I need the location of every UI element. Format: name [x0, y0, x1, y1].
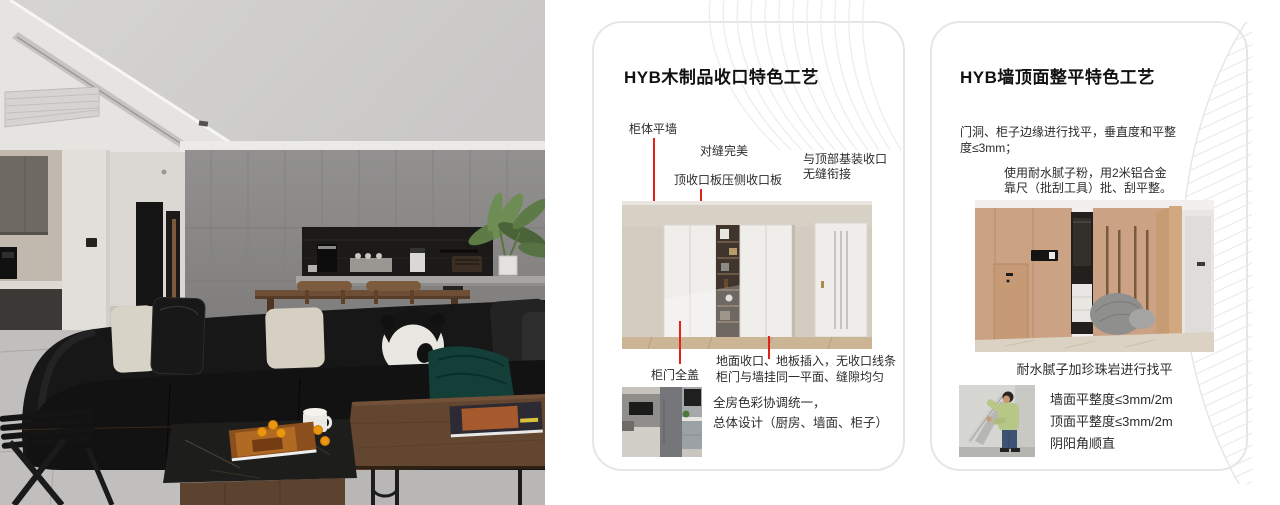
- card2-title: HYB墙顶面整平特色工艺: [960, 63, 1155, 88]
- craft-card-woodwork: HYB木制品收口特色工艺 柜体平墙 对缝完美 顶收口板压侧收口板 与顶部基装收口…: [592, 21, 905, 471]
- ceiling: [0, 0, 545, 172]
- light-switch: [86, 238, 97, 247]
- card2-specs: 墙面平整度≤3mm/2m 顶面平整度≤3mm/2m 阴阳角顺直: [1050, 389, 1173, 455]
- card1-note-line1: 地面收口、地板插入，无收口线条: [716, 354, 896, 370]
- card1-note-line2: 柜门与墙挂同一平面、缝隙均匀: [716, 370, 896, 386]
- card2-worker-photo: [959, 385, 1035, 462]
- card2-photo-caption: 耐水腻子加珍珠岩进行找平: [975, 359, 1214, 378]
- kitchen: [0, 150, 62, 341]
- card1-cabinet-render: [622, 201, 872, 354]
- page: HYB木制品收口特色工艺 柜体平墙 对缝完美 顶收口板压侧收口板 与顶部基装收口…: [0, 0, 1280, 505]
- spec-wall-flatness: 墙面平整度≤3mm/2m: [1050, 389, 1173, 411]
- living-room-illustration: [0, 0, 545, 505]
- label-ceiling-joint-line1: 与顶部基装收口: [803, 152, 887, 167]
- label-ceiling-joint: 与顶部基装收口 无缝衔接: [803, 152, 887, 182]
- coffee-machine: [0, 247, 17, 279]
- card1-summary-line2: 总体设计（厨房、墙面、柜子）: [713, 414, 888, 434]
- label-full-overlay-doors: 柜门全盖: [651, 366, 699, 383]
- card2-paragraph-2: 使用耐水腻子粉，用2米铝合金 靠尺（批刮工具）批、刮平整。: [1004, 166, 1172, 195]
- label-cabinet-flush-wall: 柜体平墙: [629, 120, 677, 137]
- card2-para2-line1: 使用耐水腻子粉，用2米铝合金: [1004, 166, 1172, 181]
- card1-summary: 全房色彩协调统一， 总体设计（厨房、墙面、柜子）: [713, 394, 888, 433]
- wood-door: [994, 264, 1028, 342]
- card1-notes: 地面收口、地板插入，无收口线条 柜门与墙挂同一平面、缝隙均匀: [716, 354, 896, 385]
- spec-ceiling-flatness: 顶面平整度≤3mm/2m: [1050, 411, 1173, 433]
- appliance-niche: [302, 227, 493, 278]
- open-door-right: [1156, 206, 1214, 342]
- leader-line-3: [679, 321, 681, 364]
- magazine-walnut-table: [449, 402, 542, 438]
- card2-para2-line2: 靠尺（批刮工具）批、刮平整。: [1004, 181, 1172, 196]
- label-perfect-seams: 对缝完美: [700, 142, 748, 159]
- card1-thumbnail-photo: [622, 387, 702, 462]
- craft-card-leveling: HYB墙顶面整平特色工艺 门洞、柜子边缘进行找平，垂直度和平整 度≤3mm； 使…: [930, 21, 1248, 471]
- label-ceiling-joint-line2: 无缝衔接: [803, 167, 887, 182]
- card2-para1-line1: 门洞、柜子边缘进行找平，垂直度和平整: [960, 125, 1236, 141]
- card1-title: HYB木制品收口特色工艺: [624, 63, 819, 88]
- card1-summary-line1: 全房色彩协调统一，: [713, 394, 888, 414]
- spec-corners-straight: 阴阳角顺直: [1050, 433, 1173, 455]
- cup-rack: [350, 258, 392, 272]
- label-top-closing-panel: 顶收口板压侧收口板: [674, 171, 782, 188]
- card2-closet-photo: [975, 200, 1214, 357]
- card2-paragraph-1: 门洞、柜子边缘进行找平，垂直度和平整 度≤3mm；: [960, 125, 1236, 156]
- interior-door: [815, 223, 867, 337]
- dark-doorway: [136, 202, 163, 308]
- card2-para1-line2: 度≤3mm；: [960, 141, 1236, 157]
- open-closet: [1071, 212, 1093, 334]
- living-room-photo: [0, 0, 545, 505]
